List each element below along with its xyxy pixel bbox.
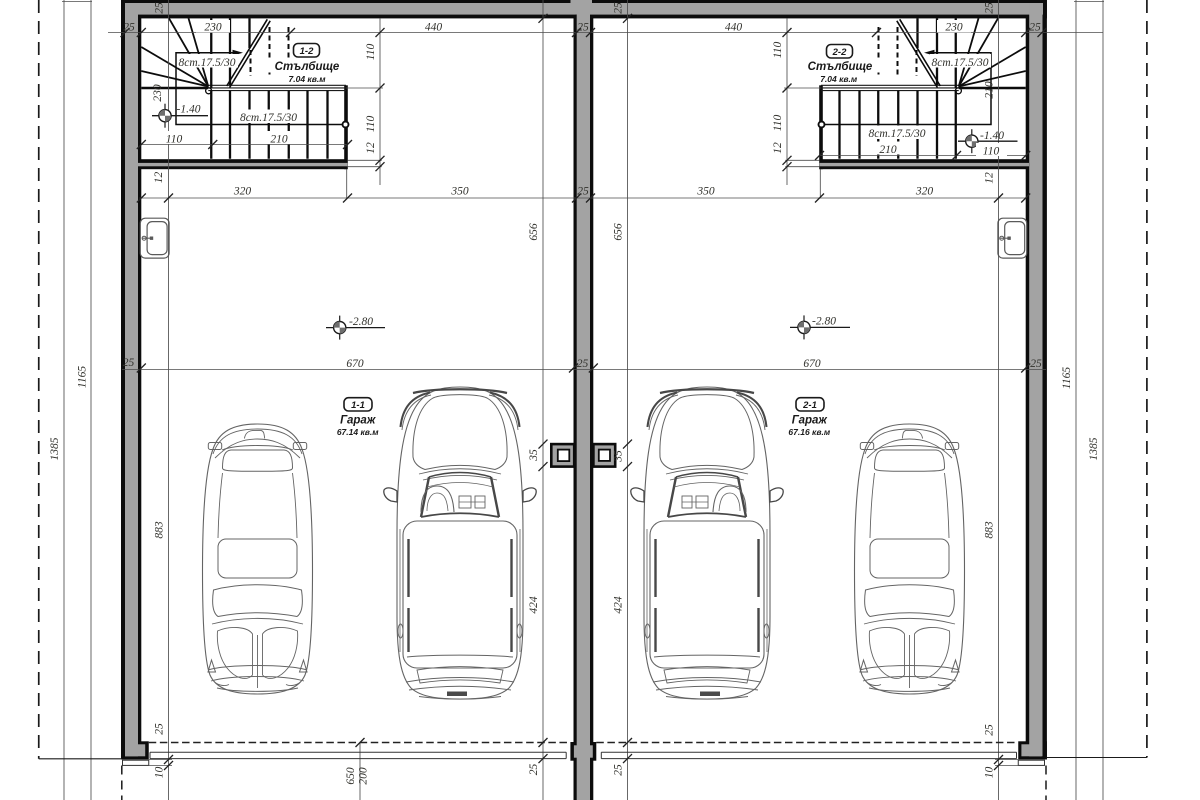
svg-text:1-1: 1-1 [351, 400, 365, 411]
svg-text:670: 670 [346, 358, 364, 370]
svg-text:350: 350 [696, 186, 715, 198]
svg-text:7.04 кв.м: 7.04 кв.м [820, 74, 858, 84]
svg-text:1165: 1165 [77, 366, 89, 388]
svg-text:Стълбище: Стълбище [275, 61, 340, 73]
svg-text:230: 230 [152, 84, 164, 102]
svg-text:25: 25 [528, 764, 540, 776]
svg-text:10: 10 [154, 767, 166, 779]
svg-text:-1.40: -1.40 [177, 104, 201, 116]
svg-text:110: 110 [772, 115, 784, 132]
svg-text:1385: 1385 [1088, 437, 1100, 460]
svg-text:656: 656 [528, 223, 540, 241]
svg-text:Стълбище: Стълбище [808, 61, 873, 73]
svg-text:110: 110 [772, 42, 784, 59]
svg-text:210: 210 [984, 81, 996, 99]
svg-text:320: 320 [915, 186, 934, 198]
svg-text:110: 110 [983, 146, 1000, 158]
svg-text:67.16 кв.м: 67.16 кв.м [788, 427, 830, 437]
svg-text:12: 12 [153, 172, 165, 184]
svg-text:210: 210 [879, 144, 897, 156]
svg-text:670: 670 [803, 358, 821, 370]
svg-text:424: 424 [613, 596, 625, 614]
svg-text:25: 25 [577, 358, 589, 370]
svg-text:25: 25 [123, 357, 135, 369]
svg-text:1165: 1165 [1061, 367, 1073, 389]
svg-text:12: 12 [984, 172, 996, 184]
svg-text:35: 35 [528, 449, 540, 462]
svg-text:25: 25 [1030, 358, 1042, 370]
svg-text:440: 440 [425, 22, 443, 34]
svg-text:25: 25 [123, 22, 135, 34]
svg-text:200: 200 [358, 767, 370, 785]
svg-text:8ст.17.5/30: 8ст.17.5/30 [932, 57, 989, 69]
svg-text:25: 25 [577, 22, 589, 34]
svg-text:10: 10 [984, 767, 996, 779]
svg-text:25: 25 [154, 2, 166, 14]
svg-text:Гараж: Гараж [340, 415, 376, 427]
svg-text:8ст.17.5/30: 8ст.17.5/30 [240, 112, 297, 124]
svg-text:320: 320 [233, 186, 252, 198]
svg-text:440: 440 [725, 22, 743, 34]
svg-text:25: 25 [984, 2, 996, 14]
svg-text:8ст.17.5/30: 8ст.17.5/30 [179, 57, 236, 69]
svg-text:2-1: 2-1 [802, 400, 817, 411]
svg-text:12: 12 [772, 142, 784, 154]
svg-text:656: 656 [613, 223, 625, 241]
svg-text:35: 35 [613, 450, 625, 463]
svg-text:230: 230 [204, 22, 222, 34]
svg-text:2-2: 2-2 [832, 47, 847, 58]
svg-text:Гараж: Гараж [792, 415, 828, 427]
svg-text:210: 210 [270, 133, 288, 145]
svg-text:7.04 кв.м: 7.04 кв.м [289, 74, 327, 84]
svg-text:-1.40: -1.40 [980, 130, 1004, 142]
svg-text:1-2: 1-2 [300, 46, 314, 57]
svg-text:67.14 кв.м: 67.14 кв.м [337, 427, 379, 437]
svg-text:110: 110 [365, 116, 377, 133]
svg-text:110: 110 [166, 133, 183, 145]
svg-text:883: 883 [154, 521, 166, 539]
svg-text:-2.80: -2.80 [349, 316, 373, 328]
svg-text:230: 230 [945, 22, 963, 34]
svg-text:25: 25 [984, 724, 996, 736]
svg-text:350: 350 [450, 186, 469, 198]
svg-text:110: 110 [365, 44, 377, 61]
svg-text:25: 25 [613, 764, 625, 776]
svg-text:1385: 1385 [49, 437, 61, 460]
svg-text:-2.80: -2.80 [812, 316, 836, 328]
svg-text:25: 25 [577, 186, 589, 198]
svg-text:883: 883 [984, 521, 996, 539]
svg-text:25: 25 [613, 2, 625, 14]
svg-text:8ст.17.5/30: 8ст.17.5/30 [869, 128, 926, 140]
svg-text:424: 424 [528, 596, 540, 614]
svg-text:25: 25 [154, 723, 166, 735]
svg-text:12: 12 [365, 142, 377, 154]
svg-text:25: 25 [1029, 22, 1041, 34]
svg-text:650: 650 [345, 767, 357, 785]
